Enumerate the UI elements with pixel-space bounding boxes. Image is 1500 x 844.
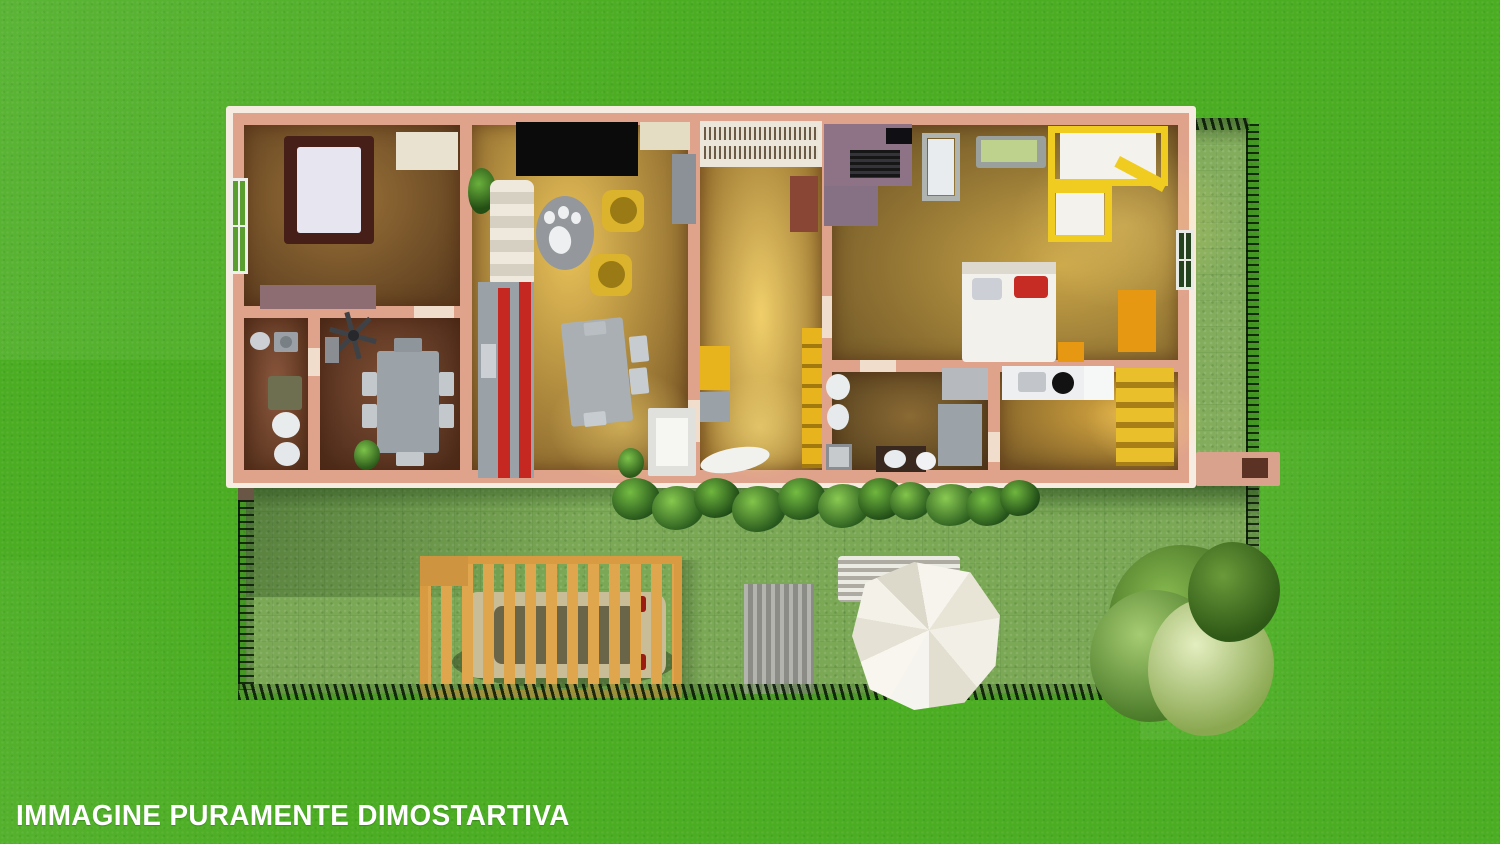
door-bathroom-2 [860,360,896,372]
bed-left-mattress [297,147,361,233]
living-table-chair-right-2 [629,367,650,395]
bathroom2-cabinet-top [942,368,988,400]
desk-mauve-return [824,186,878,226]
kitchenette-red-column-2 [519,282,531,478]
bathroom2-wc [916,452,936,470]
hallway-cabinet-gray [700,392,730,422]
desk-laptop [850,150,900,178]
tv-unit [516,122,638,176]
bathroom1-bidet [274,442,300,466]
double-bed-pillow-gray [972,278,1002,300]
hallway-shelf-yellow [802,328,822,468]
hallway-cabinet-yellow [700,346,730,390]
sideboard-gray [672,154,696,224]
kitchenette-panel [481,344,496,378]
desk-monitor [886,128,912,144]
double-bed-pillow-red [1014,276,1048,298]
bathroom1-sink [250,332,270,350]
dining-chair-right-1 [439,372,454,396]
bathroom1-hamper [268,376,302,410]
living-table-chair-right-1 [629,335,650,363]
dining-chair-left-2 [362,404,377,428]
scene: IMMAGINE PURAMENTE DIMOSTARTIVA [0,0,1500,844]
rug-footprint-toe-3 [571,212,581,224]
gate-opening [1242,458,1268,478]
bathroom2-toilet [826,374,850,400]
dining-chair-right-2 [439,404,454,428]
armchair-yellow-1-seat [610,197,637,224]
kitchen-fridge [1084,366,1114,400]
door-bathroom2-kitchen [988,432,1000,462]
dining-chair-top [394,338,422,352]
dresser-bedroom-left [260,285,376,309]
door-hallway-bedroom-right [822,296,832,338]
door-bathroom-1 [308,348,320,376]
living-table-chair-bottom [583,411,606,427]
bathroom1-washer-door [280,336,292,348]
bathroom2-bidet [827,404,849,430]
fence-top-right [1188,118,1250,130]
bathroom2-shower-tray [829,447,849,467]
ceiling-fan-hub [348,330,359,341]
cabinet-cream [640,122,690,150]
bookshelf-books-row-1 [704,127,818,140]
bathroom2-vanity-basin [884,450,906,468]
sofa [490,180,534,288]
wardrobe-bedroom-left [396,132,458,170]
dining-wall-shelf [325,337,339,363]
dining-table [377,351,439,453]
armchair-yellow-2-seat [598,261,625,288]
white-table-inner [656,418,688,466]
pergola-shadow [682,560,710,698]
patio-panel [744,584,814,694]
bathroom2-cabinet-bottom [938,404,982,466]
dining-chair-left-1 [362,372,377,396]
door-bedroom-left [414,306,454,318]
kitchen-stove [1052,372,1074,394]
loft-bed-mattress-side [1056,193,1104,235]
pergola-corner [420,556,468,586]
disclaimer-caption: IMMAGINE PURAMENTE DIMOSTARTIVA [16,800,570,833]
window-bedroom-left [230,178,248,274]
double-bed-headboard [962,262,1056,274]
window-bedroom-right [1176,230,1194,290]
hallway-cabinet-redbrown [790,176,818,232]
rug-footprint-toe-1 [544,211,555,224]
crib-mattress [928,139,954,195]
dining-chair-bottom [396,452,424,466]
kitchen-cabinet-yellow [1116,368,1174,466]
fence-left [238,500,254,690]
bench-green-top [981,140,1037,162]
bookshelf-books-row-2 [704,146,818,159]
living-table-chair-top [583,321,606,336]
kitchenette-red-column-1 [498,288,510,478]
rug-footprint-toe-2 [558,206,569,219]
kitchen-sink [1018,372,1046,392]
nightstand-orange [1058,342,1084,362]
wardrobe-orange [1118,290,1156,352]
bathroom1-toilet [272,412,300,438]
